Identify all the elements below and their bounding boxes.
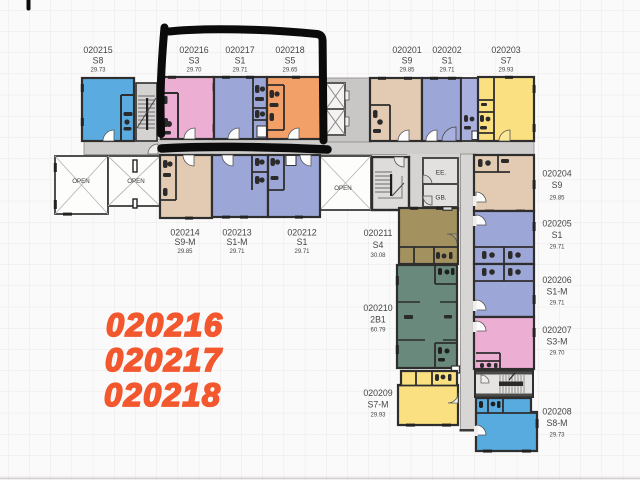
svg-text:S3-M: S3-M: [546, 337, 567, 347]
svg-text:29.71: 29.71: [439, 68, 455, 74]
svg-text:29.73: 29.73: [90, 68, 106, 74]
svg-text:29.71: 29.71: [294, 249, 310, 255]
svg-text:29.93: 29.93: [370, 413, 386, 419]
svg-text:020217: 020217: [105, 342, 223, 378]
svg-text:020208: 020208: [542, 407, 571, 417]
svg-text:29.85: 29.85: [549, 196, 565, 202]
svg-text:30.08: 30.08: [370, 253, 386, 259]
svg-text:S7-M: S7-M: [367, 400, 388, 410]
svg-text:020217: 020217: [225, 45, 254, 55]
svg-text:29.73: 29.73: [549, 433, 565, 439]
svg-text:S8: S8: [93, 56, 104, 66]
svg-text:29.65: 29.65: [282, 68, 298, 74]
svg-text:S3: S3: [189, 56, 200, 66]
svg-text:020205: 020205: [542, 219, 571, 229]
svg-text:S1: S1: [297, 237, 308, 247]
svg-text:GB.: GB.: [435, 195, 446, 202]
svg-text:020210: 020210: [363, 303, 392, 313]
svg-text:29.70: 29.70: [186, 68, 202, 74]
svg-text:60.79: 60.79: [370, 328, 386, 334]
svg-text:S7: S7: [501, 56, 512, 66]
svg-text:020218: 020218: [275, 45, 304, 55]
svg-text:020214: 020214: [170, 228, 199, 238]
svg-text:EE.: EE.: [436, 170, 447, 177]
svg-text:OPEN: OPEN: [334, 185, 352, 192]
svg-text:29.71: 29.71: [232, 68, 248, 74]
svg-text:020204: 020204: [542, 169, 571, 179]
svg-text:29.71: 29.71: [549, 245, 565, 251]
svg-text:020202: 020202: [432, 45, 461, 55]
svg-text:S9-M: S9-M: [174, 237, 195, 247]
svg-text:020207: 020207: [542, 325, 571, 335]
svg-text:020211: 020211: [364, 228, 393, 238]
svg-text:S4: S4: [373, 240, 384, 250]
svg-text:OPEN: OPEN: [72, 178, 90, 185]
svg-text:29.71: 29.71: [549, 301, 565, 307]
svg-text:020206: 020206: [542, 275, 571, 285]
svg-text:020201: 020201: [392, 45, 421, 55]
svg-text:S1-M: S1-M: [226, 237, 247, 247]
svg-text:S5: S5: [285, 56, 296, 66]
svg-text:S9: S9: [552, 180, 563, 190]
svg-text:S1-M: S1-M: [546, 287, 567, 297]
svg-text:29.93: 29.93: [498, 68, 514, 74]
svg-text:29.70: 29.70: [549, 351, 565, 357]
svg-text:29.71: 29.71: [229, 249, 245, 255]
svg-text:29.85: 29.85: [177, 249, 193, 255]
svg-text:020203: 020203: [491, 45, 520, 55]
svg-text:020216: 020216: [179, 45, 208, 55]
svg-text:020213: 020213: [222, 228, 251, 238]
svg-text:S8-M: S8-M: [546, 418, 567, 428]
svg-text:2B1: 2B1: [370, 315, 386, 325]
svg-text:29.85: 29.85: [399, 68, 415, 74]
svg-text:S1: S1: [552, 230, 563, 240]
svg-text:020216: 020216: [106, 307, 223, 343]
svg-text:S1: S1: [442, 56, 453, 66]
svg-text:S9: S9: [402, 56, 413, 66]
svg-text:020209: 020209: [363, 388, 392, 398]
svg-text:S1: S1: [235, 56, 246, 66]
svg-text:020212: 020212: [287, 228, 316, 238]
svg-text:OPEN: OPEN: [127, 178, 145, 185]
svg-text:020215: 020215: [83, 45, 112, 55]
svg-text:020218: 020218: [104, 377, 221, 413]
